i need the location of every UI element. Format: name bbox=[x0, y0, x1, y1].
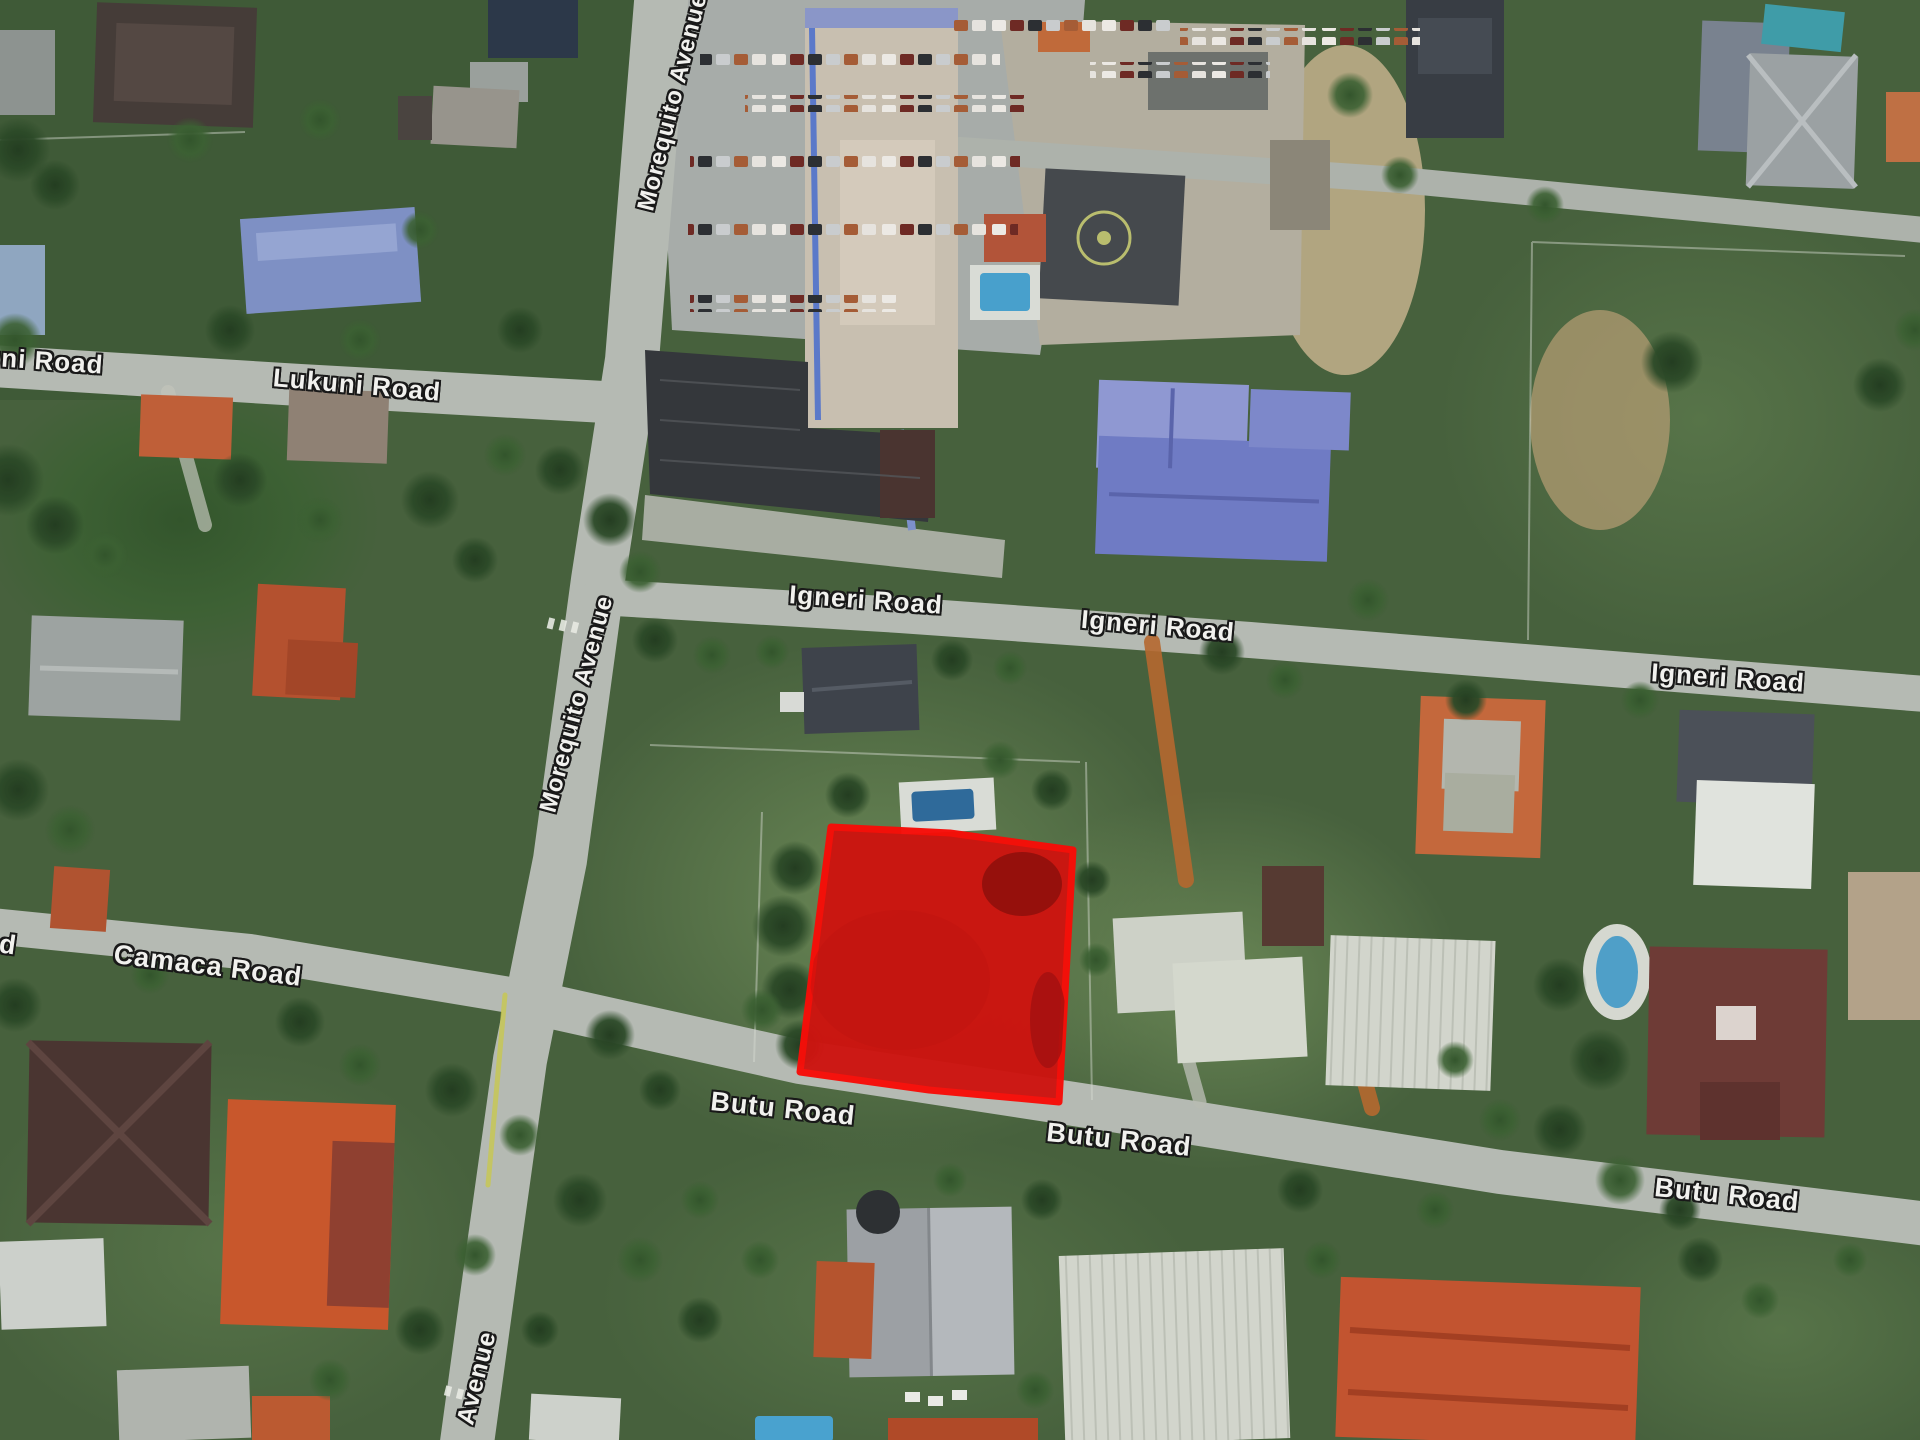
satellite-imagery bbox=[0, 0, 1920, 1440]
satellite-map[interactable]: uni Road Lukuni Road Morequito Avenue Ig… bbox=[0, 0, 1920, 1440]
parcel-group bbox=[800, 827, 1073, 1102]
